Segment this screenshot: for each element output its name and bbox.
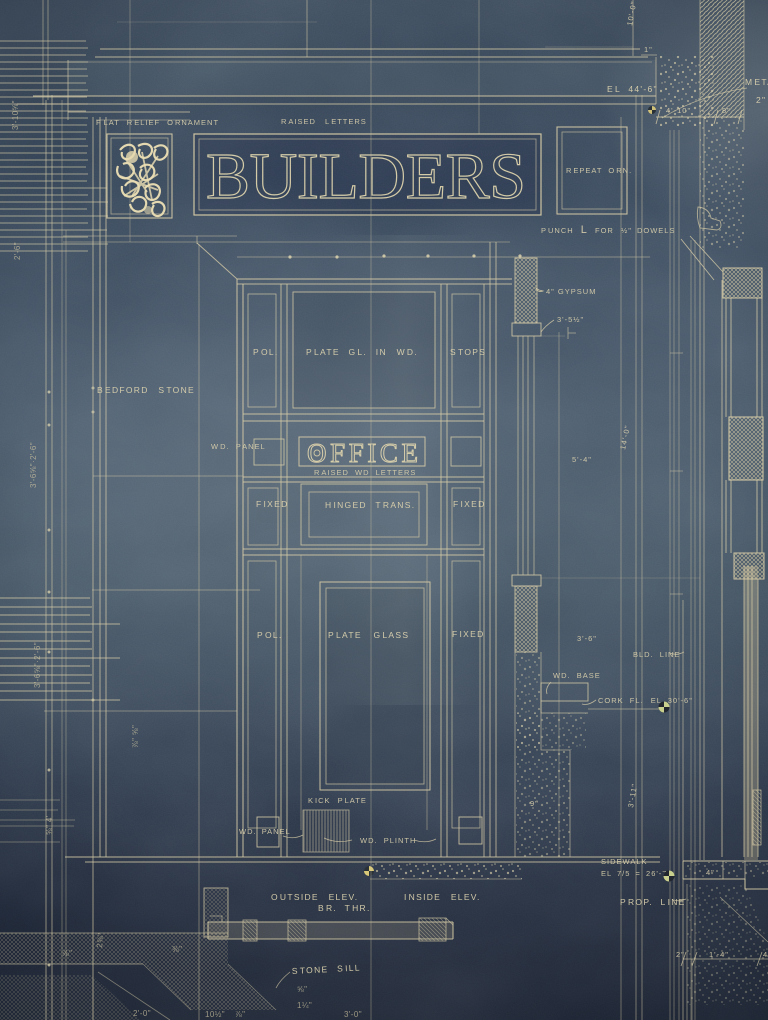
svg-text:⅝" 4': ⅝" 4' bbox=[45, 815, 54, 835]
svg-text:3'-6": 3'-6" bbox=[577, 634, 597, 643]
svg-text:4": 4" bbox=[706, 868, 715, 877]
svg-text:STOPS: STOPS bbox=[450, 347, 486, 357]
svg-text:EL 44'-6": EL 44'-6" bbox=[607, 84, 658, 94]
svg-text:SIDEWALK: SIDEWALK bbox=[601, 857, 648, 866]
svg-text:PUNCH L FOR ½" DOWELS: PUNCH L FOR ½" DOWELS bbox=[541, 224, 675, 236]
svg-text:METAL: METAL bbox=[745, 77, 768, 87]
svg-text:⅞": ⅞" bbox=[235, 1010, 245, 1019]
svg-text:INSIDE ELEV.: INSIDE ELEV. bbox=[404, 892, 481, 902]
svg-text:WD. PANEL: WD. PANEL bbox=[211, 442, 266, 451]
svg-text:9": 9" bbox=[530, 799, 539, 808]
svg-text:PROP. LINE: PROP. LINE bbox=[620, 897, 686, 907]
svg-text:POL.: POL. bbox=[257, 630, 283, 640]
svg-text:⅜": ⅜" bbox=[172, 945, 182, 954]
svg-text:3'-10⅝": 3'-10⅝" bbox=[11, 100, 20, 130]
svg-text:OUTSIDE ELEV.: OUTSIDE ELEV. bbox=[271, 892, 358, 902]
svg-text:OFFICE: OFFICE bbox=[307, 438, 419, 468]
svg-text:WD. PANEL: WD. PANEL bbox=[239, 827, 291, 836]
svg-text:3'-6⅝"·2'-6": 3'-6⅝"·2'-6" bbox=[33, 642, 42, 688]
svg-text:WD. BASE: WD. BASE bbox=[553, 671, 601, 680]
svg-text:3'-6⅝"·2'-6": 3'-6⅝"·2'-6" bbox=[29, 442, 38, 488]
svg-text:5'-4": 5'-4" bbox=[572, 455, 592, 464]
svg-text:10½": 10½" bbox=[205, 1010, 225, 1019]
svg-text:CORK FL. EL 30'-6": CORK FL. EL 30'-6" bbox=[598, 696, 693, 705]
svg-text:2": 2" bbox=[676, 950, 685, 959]
svg-text:POL.: POL. bbox=[253, 347, 279, 357]
svg-text:2": 2" bbox=[756, 95, 766, 105]
svg-text:2'-6": 2'-6" bbox=[13, 242, 22, 260]
svg-text:FLAT RELIEF ORNAMENT: FLAT RELIEF ORNAMENT bbox=[96, 118, 219, 127]
svg-text:RAISED WD LETTERS: RAISED WD LETTERS bbox=[314, 468, 416, 477]
svg-text:HINGED TRANS.: HINGED TRANS. bbox=[325, 500, 415, 510]
svg-text:BEDFORD STONE: BEDFORD STONE bbox=[97, 385, 195, 395]
svg-text:⅞" ⅝": ⅞" ⅝" bbox=[131, 725, 140, 748]
svg-text:REPEAT ORN.: REPEAT ORN. bbox=[566, 166, 632, 175]
svg-text:2'-0": 2'-0" bbox=[133, 1009, 151, 1018]
svg-text:3'-0": 3'-0" bbox=[344, 1010, 362, 1019]
svg-text:FIXED: FIXED bbox=[453, 499, 486, 509]
svg-text:4: 4 bbox=[763, 950, 768, 959]
svg-text:4" GYPSUM: 4" GYPSUM bbox=[546, 287, 596, 296]
svg-text:1¼": 1¼" bbox=[297, 1001, 312, 1010]
svg-text:⅝": ⅝" bbox=[297, 985, 307, 994]
svg-text:8": 8" bbox=[722, 106, 731, 115]
svg-text:BR. THR.: BR. THR. bbox=[318, 903, 371, 913]
svg-text:PLATE GL. IN WD.: PLATE GL. IN WD. bbox=[306, 347, 418, 357]
svg-text:1'-4": 1'-4" bbox=[709, 950, 729, 959]
svg-text:BUILDERS: BUILDERS bbox=[206, 140, 528, 213]
svg-text:EL 7/5 = 26'-7": EL 7/5 = 26'-7" bbox=[601, 869, 671, 878]
svg-text:KICK PLATE: KICK PLATE bbox=[308, 796, 367, 805]
svg-text:FIXED: FIXED bbox=[256, 499, 289, 509]
svg-text:1": 1" bbox=[644, 45, 653, 54]
svg-text:WD. PLINTH: WD. PLINTH bbox=[360, 836, 416, 845]
svg-text:FIXED: FIXED bbox=[452, 629, 485, 639]
svg-text:3'-5½": 3'-5½" bbox=[557, 315, 584, 324]
